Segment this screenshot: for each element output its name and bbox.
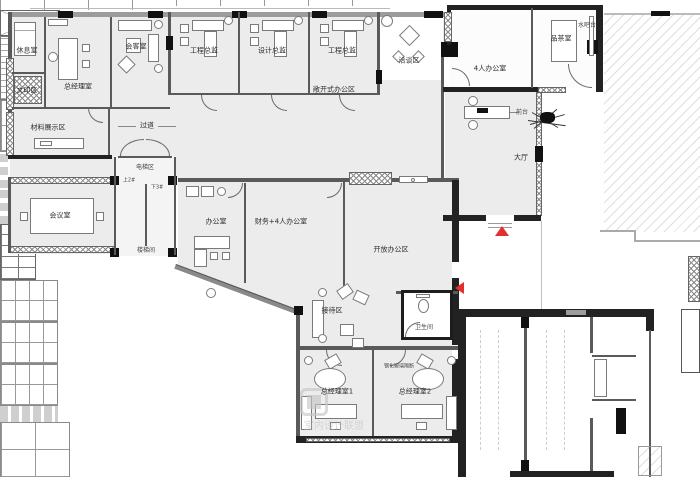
sofa: [148, 34, 159, 62]
room-label-design-director: 设计总监: [258, 48, 286, 55]
room-label-gm1: 总经理室1: [321, 389, 353, 396]
floor-outdoor-terrace: [604, 14, 700, 232]
wall-hatched-edge: [688, 256, 700, 302]
wall-column: [294, 306, 303, 315]
shelf-stub: [592, 355, 636, 357]
guest-chair: [180, 24, 189, 33]
shelf-knob: [411, 178, 415, 182]
wall-hatched: [10, 246, 116, 253]
room-label-water-bar: 水吧台: [578, 23, 596, 29]
wall-br-top: [460, 309, 652, 317]
shelf-unit: [594, 359, 607, 397]
wall-br-inner: [590, 317, 593, 353]
stairs-up-label: 上2#: [123, 179, 135, 184]
wall-material-bottom: [8, 155, 112, 159]
neighbor-room: [681, 309, 700, 373]
reception-desk-label: 前台: [516, 110, 528, 116]
conference-chair-end: [96, 212, 104, 221]
elevator-label: 电梯区: [136, 165, 154, 171]
wall-partition: [244, 183, 246, 283]
room-label-toilet: 卫生间: [415, 325, 433, 331]
wall-partition: [12, 72, 44, 74]
room-label-eng-director-2: 工程总监: [328, 48, 356, 55]
room-label-tea: 品茶室: [551, 36, 572, 43]
wall-pier: [58, 11, 73, 18]
ceiling-dash: [564, 330, 565, 450]
plant: [364, 16, 373, 25]
room-label-open-office-top: 敞开式办公区: [313, 87, 355, 94]
display-counter-inner: [40, 141, 52, 146]
hatched-fixture: [638, 446, 662, 476]
gm-chair: [48, 52, 58, 62]
wall-partition: [308, 12, 310, 95]
stairwell-label: 楼梯间: [137, 248, 155, 254]
wall-topright-top: [447, 5, 603, 10]
ceiling-dash: [546, 330, 547, 450]
room-label-lobby: 大厅: [514, 155, 528, 162]
wall-column: [521, 460, 529, 471]
plant: [154, 64, 163, 73]
wall-hatched: [538, 87, 566, 93]
wall-pier: [148, 11, 163, 18]
floor-plan: 室内设计联盟 休息室 总经理室 会客室 文印区 材料展示区 过道 工程总监 设计…: [0, 0, 700, 477]
lobby-entrance-gap: [486, 215, 514, 221]
wall-partition: [44, 17, 46, 108]
guest-chair: [250, 37, 259, 46]
wall-partition: [168, 12, 171, 95]
room-label-guest: 会客室: [126, 44, 147, 51]
plant: [304, 356, 313, 365]
workstation-cluster: [0, 280, 58, 322]
guest-chair: [180, 37, 189, 46]
guest-chair: [210, 252, 218, 260]
guest-chair: [320, 24, 329, 33]
wall-gm-divider: [372, 350, 374, 438]
wall-pier: [312, 11, 327, 18]
corridor-label: 过道: [140, 123, 154, 130]
plant: [318, 288, 327, 297]
room-label-gm-top: 总经理室: [64, 84, 92, 91]
room-label-material: 材料展示区: [31, 125, 66, 132]
plant: [206, 288, 216, 298]
plant: [447, 356, 456, 365]
canopy-line: [634, 240, 700, 242]
wall-gm-top: [298, 346, 458, 350]
entrance-step: [488, 223, 512, 224]
wall-hatched: [6, 112, 14, 156]
guest-chair: [82, 44, 90, 52]
wall-lobby-left: [441, 57, 444, 182]
wall-partition: [114, 157, 116, 255]
plant: [224, 16, 233, 25]
main-entrance-arrow-icon: [495, 226, 509, 236]
room-label-open-office-main: 开放办公区: [374, 247, 409, 254]
side-entrance-arrow-icon: [455, 282, 464, 294]
armchair: [352, 338, 364, 348]
wall-hatched: [6, 58, 14, 110]
wall-partition: [238, 12, 240, 95]
plant: [154, 20, 163, 29]
wall-br-inner: [590, 418, 593, 477]
workstation-cluster: [0, 322, 58, 364]
wall-lobby-top: [443, 87, 543, 92]
canopy-line: [600, 230, 636, 232]
room-label-4p-office: 4人办公室: [474, 66, 506, 73]
sofa: [118, 20, 152, 31]
conference-chairs-top: [0, 406, 58, 414]
cabinet: [186, 186, 199, 197]
wall-partition: [110, 17, 112, 108]
cabinet: [48, 19, 68, 26]
wall-partition: [174, 157, 176, 255]
plant-sculpture-center: [540, 112, 555, 123]
terrace-pier: [651, 11, 670, 16]
room-label-rest: 休息室: [17, 48, 38, 55]
room-label-office: 办公室: [206, 219, 227, 226]
guest-chair: [320, 37, 329, 46]
cabinet: [201, 186, 214, 197]
gm-chair: [416, 422, 427, 430]
wall-column: [521, 317, 529, 328]
plant: [318, 334, 327, 343]
sofa: [446, 396, 457, 430]
wall-br-left: [458, 309, 466, 477]
wall-column: [166, 36, 173, 50]
coffee-table: [340, 324, 354, 336]
watermark-logo-inner: [307, 395, 321, 409]
reception-equipment: [477, 108, 488, 113]
wall-column: [376, 70, 382, 84]
tea-chairs-right: [0, 188, 8, 224]
room-label-reception-area: 接待区: [322, 308, 343, 315]
room-label-meeting: 会议室: [50, 213, 71, 220]
office-desk-return: [194, 249, 207, 267]
wall-hatched: [444, 12, 452, 42]
conference-chairs-bottom: [0, 414, 58, 422]
gm-desk: [58, 38, 78, 80]
wall-partition: [343, 181, 345, 295]
ceiling-dash: [498, 330, 499, 450]
reception-stool: [468, 120, 478, 130]
plant: [381, 15, 393, 27]
wall-gap: [452, 262, 459, 278]
wall-br-top-gray: [566, 310, 586, 315]
stairs-down-label: 下3#: [151, 186, 163, 191]
room-label-eng-director-1: 工程总监: [190, 48, 218, 55]
wall-partition: [531, 8, 533, 88]
director-desk: [332, 20, 364, 31]
stair-divider: [145, 184, 147, 246]
toilet-tank: [416, 294, 430, 298]
reception-stool: [468, 96, 478, 106]
director-desk: [192, 20, 224, 31]
corridor-arrow-line: [118, 126, 136, 127]
workstation-cluster: [0, 422, 70, 477]
room-label-finance: 财务+4人办公室: [255, 219, 307, 226]
director-desk: [262, 20, 294, 31]
office-desk: [194, 236, 230, 249]
guest-chair: [82, 60, 90, 68]
dimension-line-top: [30, 8, 390, 9]
wall-br-right-cap: [646, 309, 654, 331]
room-label-print: 文印区: [17, 88, 38, 95]
plant: [217, 187, 226, 196]
wall-column: [535, 146, 543, 162]
bed-line: [15, 30, 35, 31]
wall-br-bottom: [510, 471, 614, 477]
wall-hatched: [306, 438, 450, 442]
entry-threshold: [118, 156, 172, 158]
shelf-stub: [592, 399, 636, 401]
watermark-text: 室内设计联盟: [304, 422, 364, 432]
wall-hatched: [10, 177, 116, 184]
workstation-cluster: [0, 364, 58, 406]
wall-br-mid: [524, 317, 527, 471]
cabinet-hatched: [349, 172, 392, 185]
room-label-negotiation: 洽谈区: [399, 58, 420, 65]
corridor-arrow-line: [158, 126, 176, 127]
conference-chair-end: [20, 212, 28, 221]
tea-chairs-left: [0, 152, 8, 188]
wall-gm-left: [296, 311, 300, 441]
plant: [294, 16, 303, 25]
gm-desk: [401, 404, 443, 419]
guest-chair: [222, 252, 230, 260]
toilet: [418, 299, 429, 313]
wall-faint: [541, 221, 542, 310]
glass-partition-note: 钢化玻璃隔断: [384, 365, 414, 370]
wall-partition: [108, 107, 110, 158]
room-label-gm2: 总经理室2: [399, 389, 431, 396]
ceiling-dash: [480, 330, 481, 450]
guest-chair: [250, 24, 259, 33]
wall-pier: [424, 11, 443, 18]
structural-column: [616, 408, 626, 434]
wall-partition: [8, 177, 11, 253]
